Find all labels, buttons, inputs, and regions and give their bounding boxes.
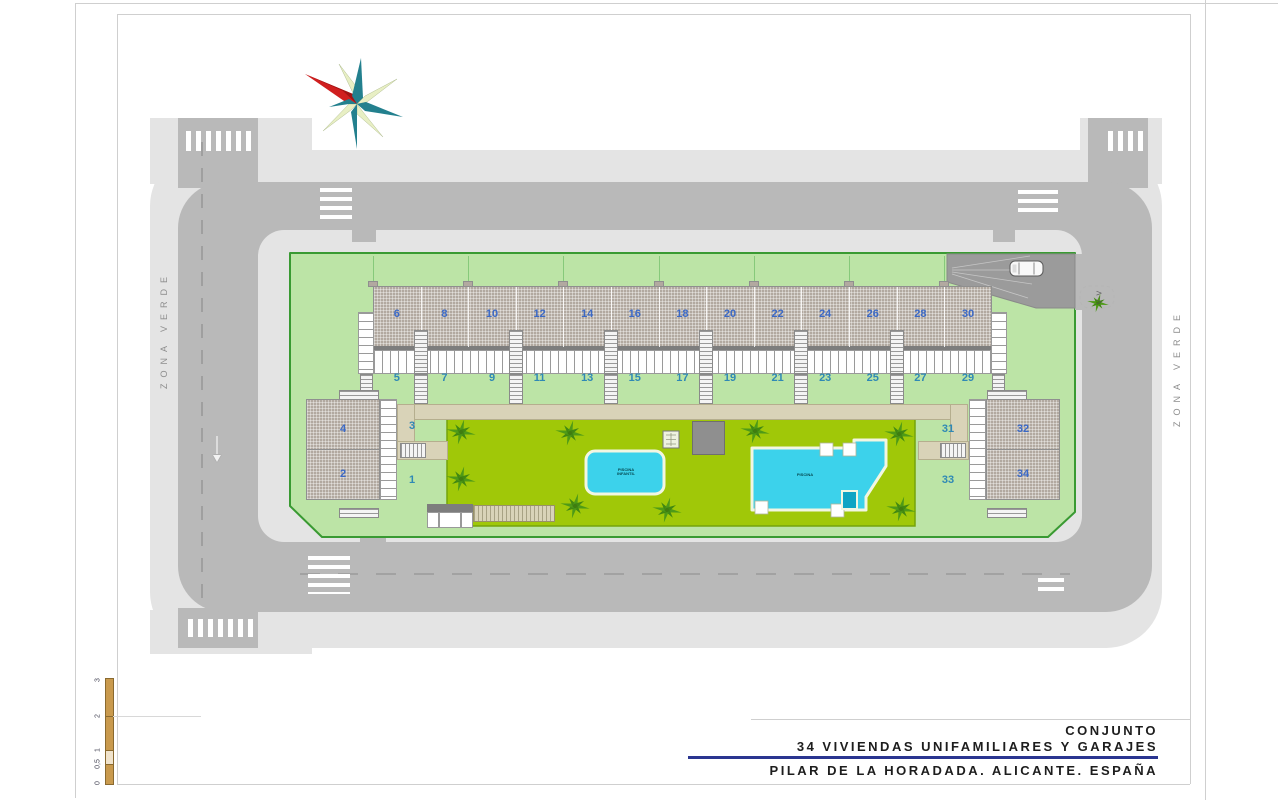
stair-shaft — [794, 330, 808, 374]
jacuzzi — [842, 491, 857, 509]
garden-stairs — [414, 374, 428, 404]
unit-number: 8 — [431, 308, 457, 320]
unit-number: 5 — [384, 372, 410, 384]
right-block-terraces — [969, 399, 986, 500]
unit-number: 10 — [479, 308, 505, 320]
roof-party-line — [754, 287, 755, 347]
pergola-colonnade — [427, 512, 473, 528]
unit-number: 20 — [717, 308, 743, 320]
unit-number: 24 — [812, 308, 838, 320]
unit-number: 29 — [955, 372, 981, 384]
unit-number: 17 — [669, 372, 695, 384]
walkway-top — [397, 404, 968, 420]
right-cross-stairs — [940, 443, 966, 458]
roof-party-line — [468, 287, 469, 347]
section-marker-label: V-V — [1097, 290, 1104, 304]
unit-number: 21 — [765, 372, 791, 384]
pergola-roof — [427, 504, 473, 512]
chimney — [749, 281, 759, 287]
roof-party-line — [849, 287, 850, 347]
unit-number: 15 — [622, 372, 648, 384]
unit-number: 23 — [812, 372, 838, 384]
chimney — [558, 281, 568, 287]
unit-number: 7 — [431, 372, 457, 384]
parcel-scenery — [0, 0, 1280, 800]
scale-tick-label: 0,5 — [95, 759, 102, 769]
title-box-top — [751, 719, 1190, 720]
stair-shaft — [414, 330, 428, 374]
main-pool — [752, 440, 886, 517]
unit-number: 19 — [717, 372, 743, 384]
unit-number: 4 — [330, 423, 356, 435]
left-block-stairs-bottom — [339, 508, 379, 518]
gate-symbol — [663, 431, 679, 448]
garden-stairs — [604, 374, 618, 404]
unit-number: 6 — [384, 308, 410, 320]
scale-tick-label: 2 — [95, 714, 102, 718]
left-block-divider — [307, 449, 379, 450]
stair-shaft — [890, 330, 904, 374]
left-cross-stairs — [400, 443, 426, 458]
kids-pool-label: PISCINAINFANTIL — [608, 468, 644, 476]
unit-number: 33 — [935, 474, 961, 486]
right-block-stairs-bottom — [987, 508, 1027, 518]
unit-number: 14 — [574, 308, 600, 320]
unit-number: 31 — [935, 423, 961, 435]
chimney — [463, 281, 473, 287]
unit-number: 30 — [955, 308, 981, 320]
zona-verde-label-left: ZONA VERDE — [159, 271, 169, 389]
unit-number: 3 — [399, 420, 425, 432]
pool-shed — [692, 421, 725, 455]
unit-number: 34 — [1010, 468, 1036, 480]
right-block-divider — [987, 449, 1059, 450]
project-title-line2: 34 VIVIENDAS UNIFAMILIARES Y GARAJES — [797, 739, 1158, 754]
unit-number: 1 — [399, 474, 425, 486]
stair-shaft — [604, 330, 618, 374]
zona-verde-label-right: ZONA VERDE — [1172, 309, 1182, 427]
garden-stairs — [794, 374, 808, 404]
garden-stairs — [699, 374, 713, 404]
project-title-line1: CONJUNTO — [1065, 723, 1158, 738]
row-end-terrace-right — [991, 312, 1007, 374]
unit-number: 27 — [907, 372, 933, 384]
compass-rose-icon — [297, 52, 417, 162]
scale-tick-label: 1 — [95, 748, 102, 752]
unit-number: 11 — [527, 372, 553, 384]
unit-number: 18 — [669, 308, 695, 320]
stair-shaft — [699, 330, 713, 374]
title-accent-rule — [688, 756, 1158, 759]
garden-stairs — [890, 374, 904, 404]
unit-number: 22 — [765, 308, 791, 320]
scale-tick-label: 0 — [95, 781, 102, 785]
unit-number: 25 — [860, 372, 886, 384]
chimney — [939, 281, 949, 287]
car-icon — [1010, 261, 1043, 276]
site-plan-sheet: 6587109121114131615181720192221242326252… — [0, 0, 1280, 800]
main-pool-label: PISCINA — [792, 473, 818, 477]
chimney — [654, 281, 664, 287]
garden-stairs — [509, 374, 523, 404]
row-end-terrace-left — [358, 312, 374, 374]
project-location-line: PILAR DE LA HORADADA. ALICANTE. ESPAÑA — [770, 763, 1158, 778]
chimney — [844, 281, 854, 287]
roof-party-line — [944, 287, 945, 347]
scale-tick-label: 3 — [95, 678, 102, 682]
unit-number: 28 — [907, 308, 933, 320]
unit-number: 13 — [574, 372, 600, 384]
unit-number: 26 — [860, 308, 886, 320]
unit-number: 16 — [622, 308, 648, 320]
stair-shaft — [509, 330, 523, 374]
unit-number: 2 — [330, 468, 356, 480]
left-block-terraces — [380, 399, 397, 500]
roof-party-line — [659, 287, 660, 347]
unit-number: 32 — [1010, 423, 1036, 435]
canopy-strip — [473, 505, 555, 522]
unit-number: 9 — [479, 372, 505, 384]
unit-number: 12 — [527, 308, 553, 320]
chimney — [368, 281, 378, 287]
roof-party-line — [563, 287, 564, 347]
